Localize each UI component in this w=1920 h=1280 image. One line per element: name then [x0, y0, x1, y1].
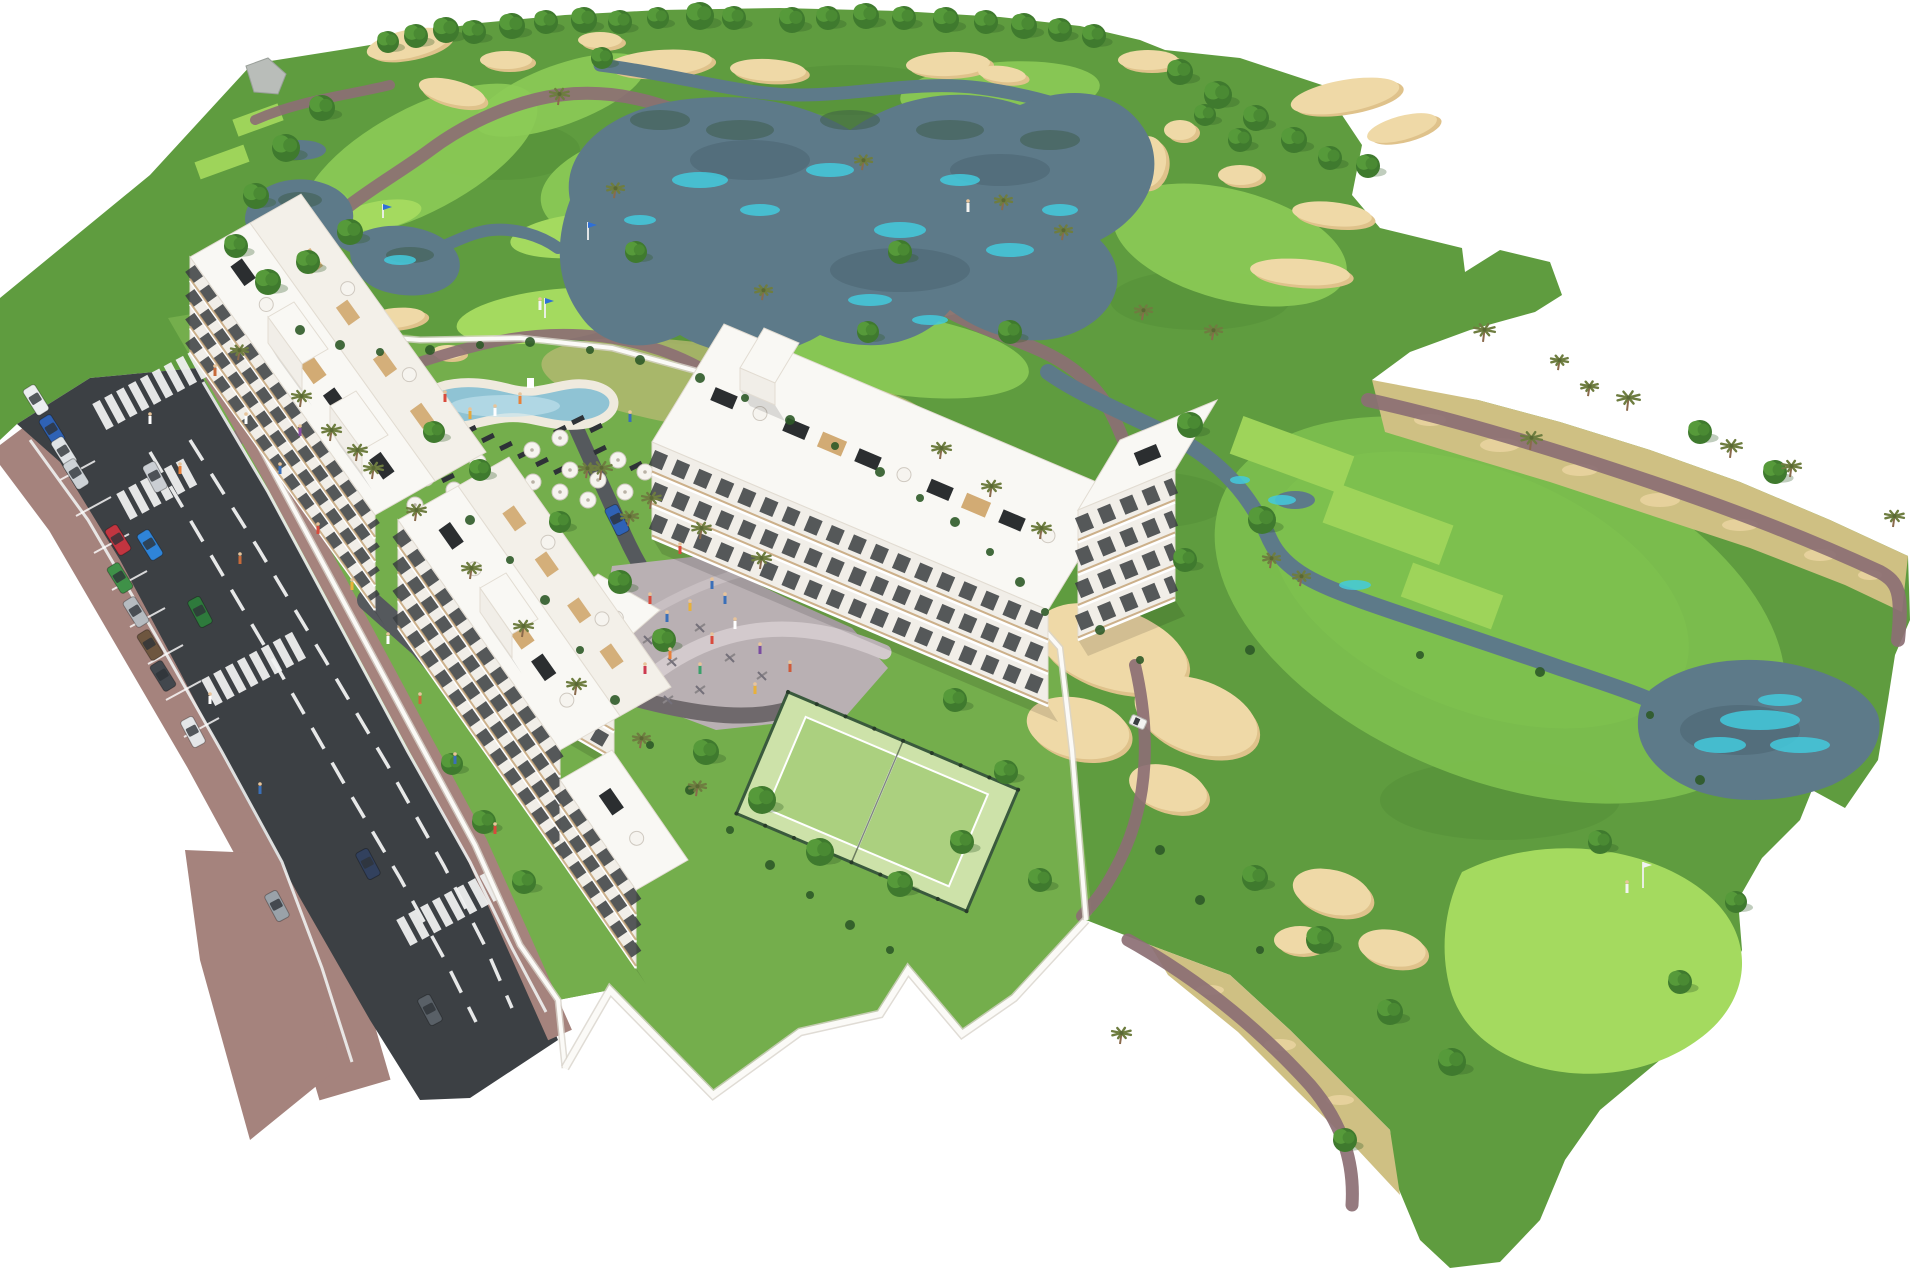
shallow-water — [1694, 737, 1746, 753]
roof-parasol — [259, 298, 273, 312]
palm-tree — [1581, 382, 1598, 397]
parasol-pole — [586, 498, 590, 502]
pedestrian — [644, 666, 647, 674]
parasol-pole — [558, 436, 562, 440]
shrub — [1015, 577, 1025, 587]
aerial-render-canvas: Aerial 3D render of a white apartment re… — [0, 0, 1920, 1280]
pedestrian-head — [298, 424, 302, 428]
shrub — [1155, 845, 1165, 855]
golfer-head — [966, 199, 970, 203]
pedestrian-head — [418, 692, 422, 696]
pedestrian-head — [665, 610, 669, 614]
pool-feature — [527, 378, 534, 388]
shallow-water — [986, 243, 1034, 257]
tree — [1688, 420, 1719, 444]
shallow-water — [1770, 737, 1830, 753]
shrub — [1256, 946, 1264, 954]
parasol-pole — [643, 470, 647, 474]
pedestrian — [734, 621, 737, 629]
parasol-pole — [531, 480, 535, 484]
golfer — [967, 203, 970, 212]
pedestrian — [494, 408, 497, 416]
pedestrian — [214, 368, 217, 376]
shallow-water — [1230, 476, 1250, 484]
palm-tree — [1617, 391, 1640, 410]
shrub — [950, 517, 960, 527]
pedestrian — [279, 466, 282, 474]
pedestrian — [494, 826, 497, 834]
pedestrian — [666, 614, 669, 622]
shrub — [986, 548, 994, 556]
shrub — [695, 373, 705, 383]
pedestrian — [179, 466, 182, 474]
pedestrian — [711, 581, 714, 589]
pedestrian-head — [493, 404, 497, 408]
shrub — [1695, 775, 1705, 785]
shrub — [525, 337, 535, 347]
pedestrian-head — [386, 632, 390, 636]
pedestrian — [209, 696, 212, 704]
parasol-pole — [568, 468, 572, 472]
pedestrian — [519, 396, 522, 404]
shrub — [465, 515, 475, 525]
shrub — [540, 595, 550, 605]
pedestrian — [711, 636, 714, 644]
pedestrian-head — [213, 364, 217, 368]
shrub — [335, 340, 345, 350]
pedestrian — [699, 666, 702, 674]
shrub — [506, 556, 514, 564]
shallow-water — [806, 163, 854, 177]
roof-parasol — [630, 831, 644, 845]
pedestrian — [317, 526, 320, 534]
shallow-water — [1268, 495, 1296, 505]
pedestrian-head — [493, 822, 497, 826]
shrub — [476, 341, 484, 349]
pedestrian-head — [443, 390, 447, 394]
shrub — [576, 646, 584, 654]
pedestrian-head — [518, 392, 522, 396]
roof-parasol — [341, 282, 355, 296]
bunker — [578, 32, 622, 48]
shallow-water — [624, 215, 656, 225]
pedestrian — [789, 664, 792, 672]
shrub — [610, 695, 620, 705]
bunker — [1164, 120, 1196, 140]
shallow-water — [874, 222, 926, 238]
shrub — [425, 345, 435, 355]
pedestrian-head — [208, 692, 212, 696]
pedestrian — [649, 596, 652, 604]
pedestrian-head — [258, 782, 262, 786]
shrub — [586, 346, 594, 354]
tree — [1356, 154, 1387, 178]
shallow-water — [1758, 694, 1802, 706]
shrub — [785, 415, 795, 425]
shallow-water — [740, 204, 780, 216]
pedestrian-head — [278, 462, 282, 466]
roof-parasol — [541, 535, 555, 549]
pedestrian-head — [648, 592, 652, 596]
pedestrian-head — [643, 662, 647, 666]
golf-resort-render — [0, 0, 1920, 1280]
pedestrian — [351, 582, 354, 590]
pedestrian-head — [710, 577, 714, 581]
shallow-water — [672, 172, 728, 188]
golfer-head — [538, 297, 542, 301]
pedestrian — [245, 416, 248, 424]
shrub — [741, 394, 749, 402]
pedestrian-head — [316, 522, 320, 526]
pedestrian-head — [628, 410, 632, 414]
pedestrian — [629, 414, 632, 422]
shrub — [635, 355, 645, 365]
pedestrian-head — [733, 617, 737, 621]
shallow-water — [1720, 710, 1800, 730]
pedestrian-head — [753, 682, 757, 686]
tree-reflection — [630, 110, 690, 130]
pedestrian-head — [244, 412, 248, 416]
shrub — [831, 442, 839, 450]
shallow-water — [912, 315, 948, 325]
pedestrian-head — [788, 660, 792, 664]
parasol-pole — [616, 458, 620, 462]
pedestrian-head — [178, 462, 182, 466]
pedestrian-head — [688, 599, 692, 603]
pedestrian-head — [148, 412, 152, 416]
pedestrian — [759, 646, 762, 654]
tree-reflection — [1020, 130, 1080, 150]
tree-reflection — [706, 120, 774, 140]
shrub — [1136, 656, 1144, 664]
golfer — [1626, 884, 1629, 893]
pedestrian-head — [678, 542, 682, 546]
shrub — [1195, 895, 1205, 905]
pedestrian — [299, 428, 302, 436]
shrub — [1095, 625, 1105, 635]
palm-tree — [1885, 511, 1904, 527]
shrub — [806, 891, 814, 899]
pedestrian — [679, 546, 682, 554]
pedestrian — [444, 394, 447, 402]
shallow-water — [940, 174, 980, 186]
shrub — [916, 494, 924, 502]
parasol-pole — [558, 490, 562, 494]
tree-reflection — [820, 110, 880, 130]
bunker — [1218, 165, 1262, 185]
shallow-water — [848, 294, 892, 306]
pedestrian-head — [468, 407, 472, 411]
golfer-head — [1625, 880, 1629, 884]
shrub — [886, 946, 894, 954]
pedestrian-head — [710, 632, 714, 636]
pedestrian-head — [350, 578, 354, 582]
roof-parasol — [595, 612, 609, 626]
palm-tree — [1551, 356, 1568, 371]
pedestrian — [149, 416, 152, 424]
palm-tree — [1112, 1028, 1131, 1044]
shallow-water — [1339, 580, 1371, 590]
pedestrian — [689, 603, 692, 611]
golfer — [539, 301, 542, 310]
shrub — [726, 826, 734, 834]
roof-parasol — [897, 468, 911, 482]
parasol-pole — [623, 490, 627, 494]
pedestrian-head — [758, 642, 762, 646]
shrub — [376, 348, 384, 356]
shrub — [1535, 667, 1545, 677]
shrub — [765, 860, 775, 870]
pedestrian-head — [453, 752, 457, 756]
shrub — [875, 467, 885, 477]
palm-tree — [1721, 440, 1742, 458]
pedestrian-head — [723, 592, 727, 596]
pool-shallow — [450, 395, 560, 417]
shrub — [1416, 651, 1424, 659]
pedestrian-head — [238, 552, 242, 556]
pedestrian-head — [668, 647, 672, 651]
pedestrian — [239, 556, 242, 564]
shrub — [1646, 711, 1654, 719]
tree-reflection — [916, 120, 984, 140]
pedestrian — [724, 596, 727, 604]
shallow-water — [384, 255, 416, 265]
pedestrian — [387, 636, 390, 644]
pedestrian — [669, 651, 672, 659]
pedestrian — [454, 756, 457, 764]
pedestrian — [259, 786, 262, 794]
tree — [1725, 891, 1753, 913]
shrub — [295, 325, 305, 335]
pedestrian — [419, 696, 422, 704]
roof-parasol — [402, 368, 416, 382]
pedestrian — [469, 411, 472, 419]
shrub — [1245, 645, 1255, 655]
pedestrian-head — [698, 662, 702, 666]
bunker — [480, 51, 532, 69]
shallow-water — [1042, 204, 1078, 216]
shrub — [1041, 608, 1049, 616]
pedestrian — [754, 686, 757, 694]
parasol-pole — [530, 448, 534, 452]
shrub — [646, 741, 654, 749]
shrub — [845, 920, 855, 930]
roof-parasol — [560, 693, 574, 707]
